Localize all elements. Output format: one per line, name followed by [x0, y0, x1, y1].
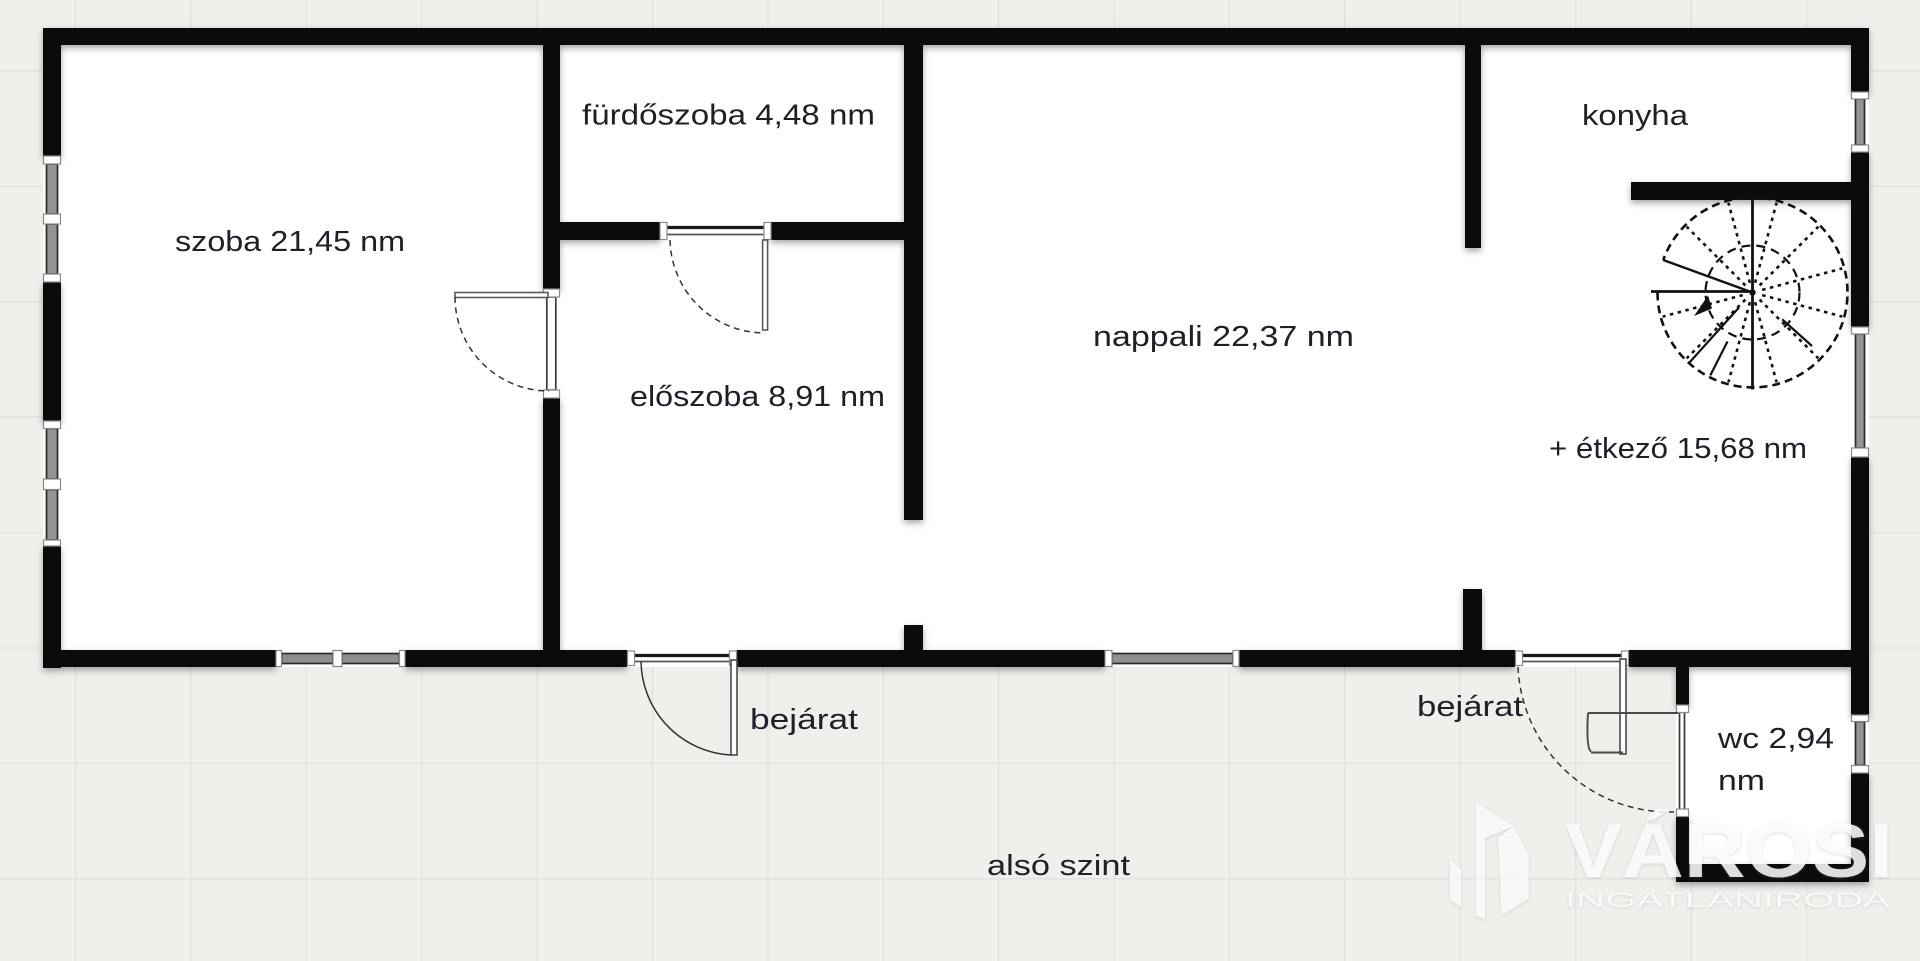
- svg-text:alsó szint: alsó szint: [987, 850, 1130, 882]
- svg-text:VÁROSI: VÁROSI: [1565, 809, 1893, 894]
- svg-text:nm: nm: [1718, 765, 1765, 797]
- svg-text:+ étkező 15,68 nm: + étkező 15,68 nm: [1549, 433, 1807, 465]
- svg-text:INGATLANIRODA: INGATLANIRODA: [1565, 889, 1890, 912]
- svg-text:konyha: konyha: [1582, 100, 1689, 132]
- svg-text:fürdőszoba 4,48 nm: fürdőszoba 4,48 nm: [582, 100, 875, 132]
- svg-text:wc 2,94: wc 2,94: [1717, 723, 1834, 755]
- svg-text:bejárat: bejárat: [1417, 691, 1523, 723]
- svg-text:nappali 22,37 nm: nappali 22,37 nm: [1093, 321, 1354, 353]
- svg-text:szoba 21,45 nm: szoba 21,45 nm: [175, 226, 405, 258]
- svg-text:bejárat: bejárat: [750, 704, 858, 736]
- svg-text:előszoba 8,91 nm: előszoba 8,91 nm: [630, 381, 885, 413]
